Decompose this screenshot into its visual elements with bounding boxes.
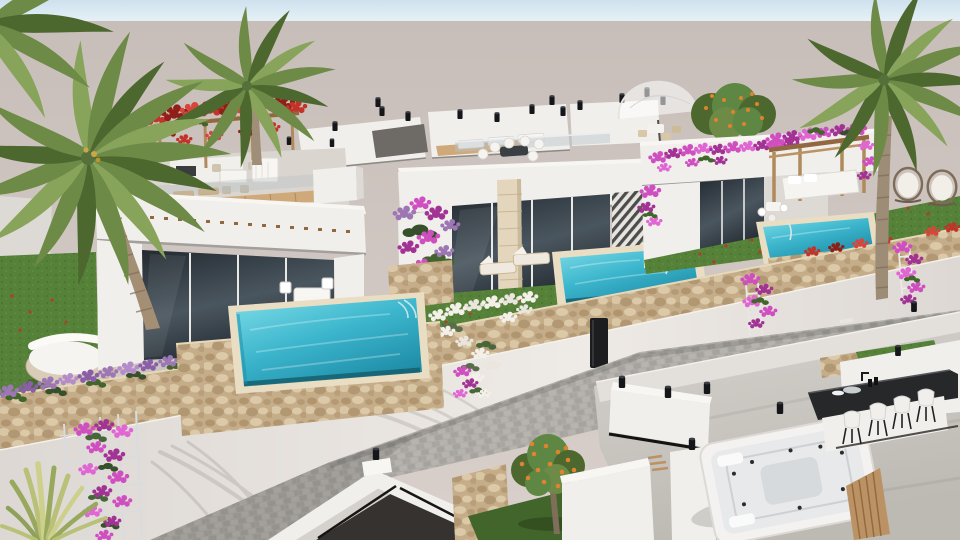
sky: [0, 0, 960, 22]
roof-stair-box: [313, 166, 364, 204]
render-viewport: [0, 0, 960, 540]
villa-complex-render: [0, 0, 960, 540]
left-pool: [236, 298, 422, 386]
